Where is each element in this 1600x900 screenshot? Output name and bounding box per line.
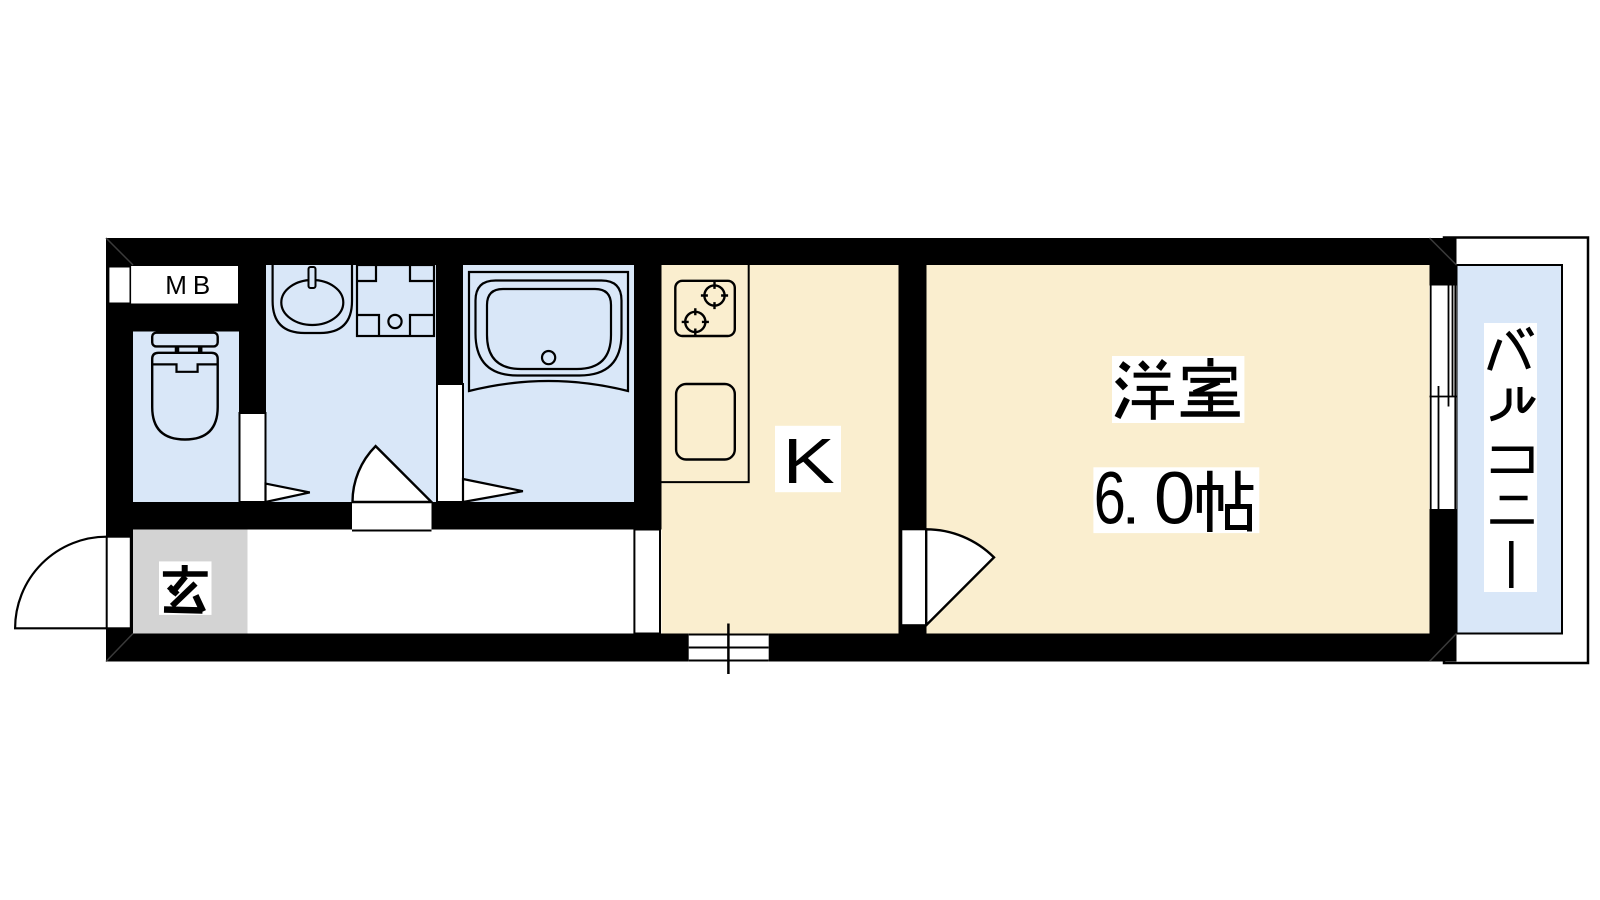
svg-text:0: 0 xyxy=(1154,457,1195,540)
svg-text:6: 6 xyxy=(1094,458,1126,541)
svg-text:K: K xyxy=(783,426,835,498)
svg-text:MB: MB xyxy=(165,270,216,300)
